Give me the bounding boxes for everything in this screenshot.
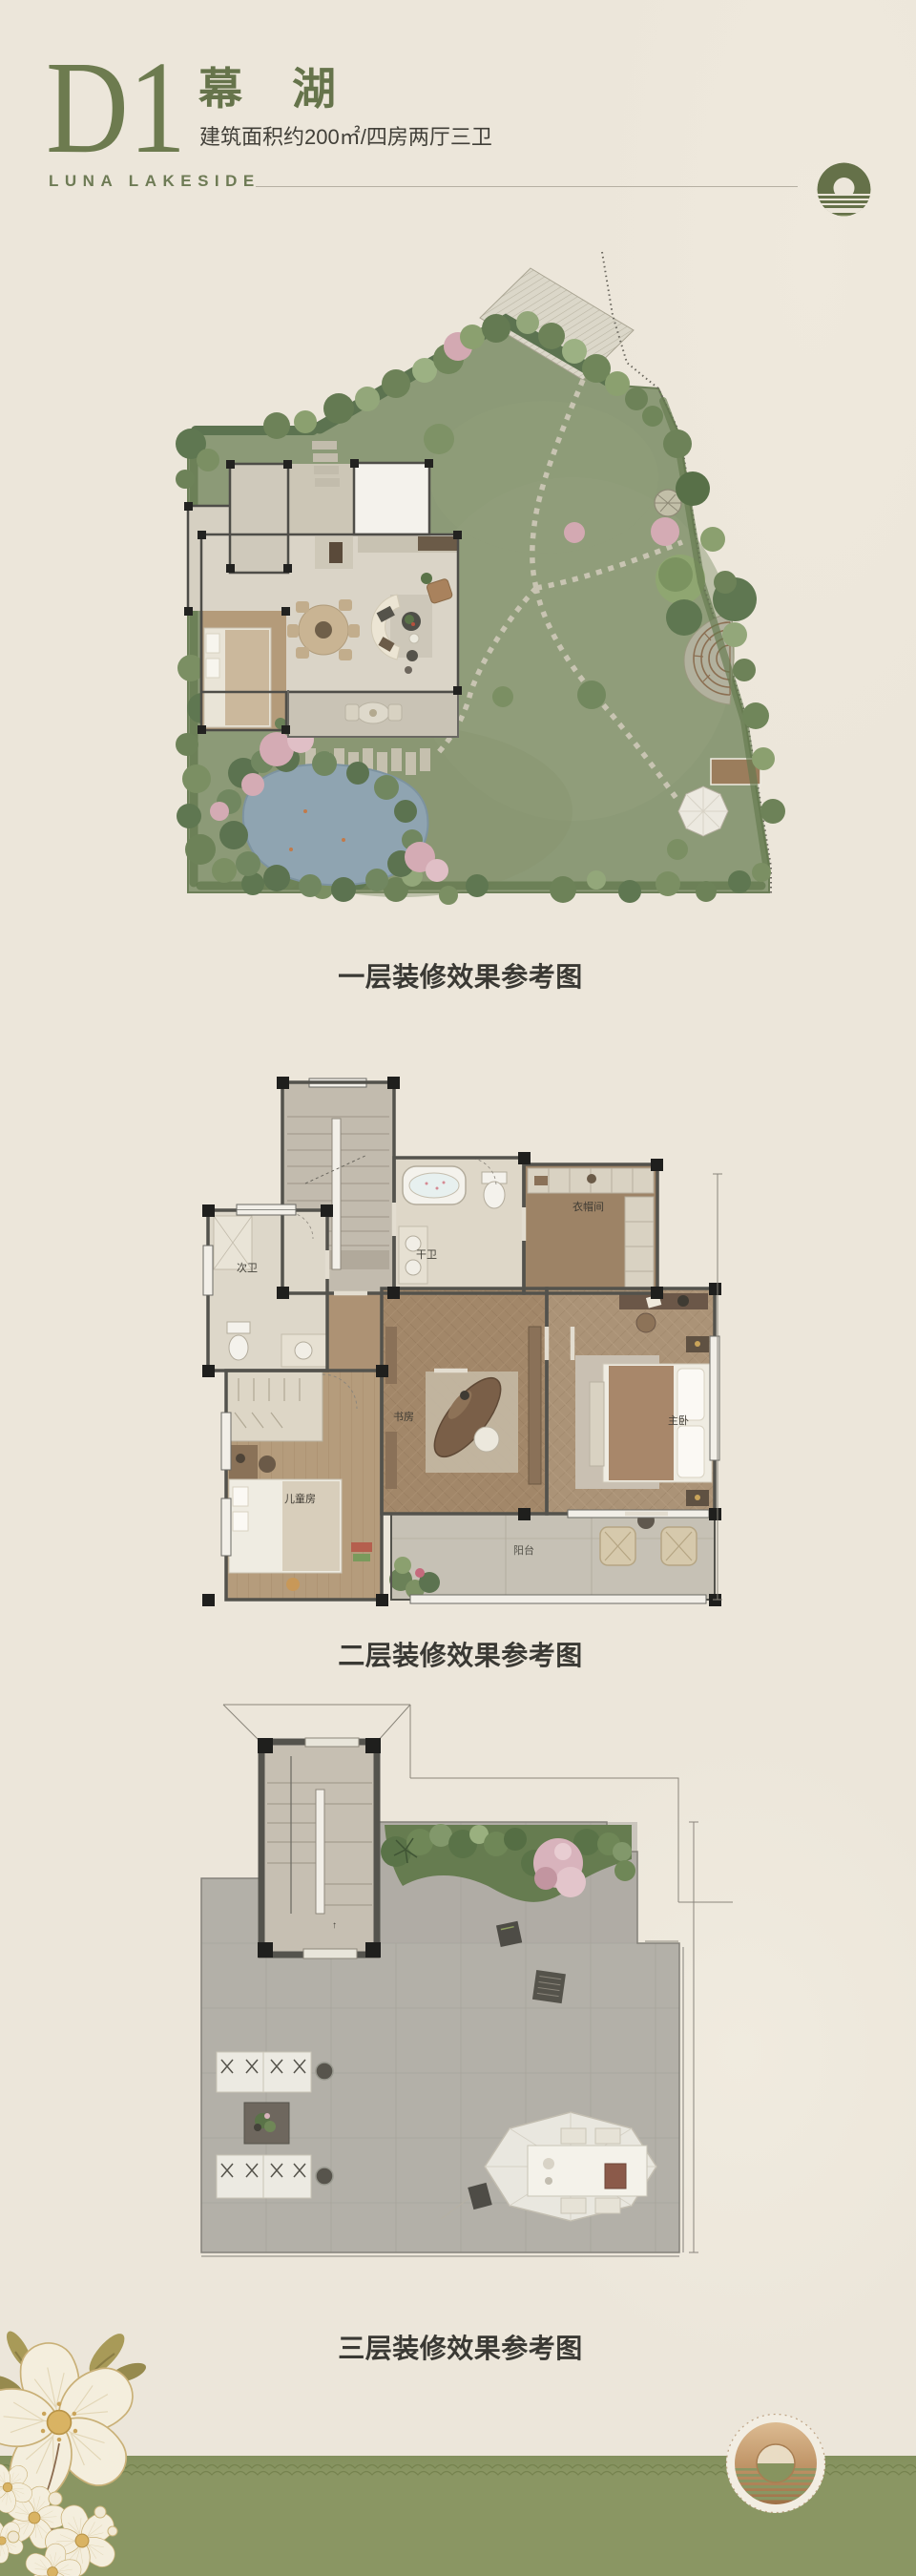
svg-text:衣帽间: 衣帽间 bbox=[572, 1200, 604, 1213]
svg-text:阳台: 阳台 bbox=[513, 1543, 534, 1557]
svg-text:干卫: 干卫 bbox=[416, 1249, 437, 1261]
svg-text:↑: ↑ bbox=[332, 1920, 337, 1931]
svg-text:儿童房: 儿童房 bbox=[284, 1492, 316, 1505]
svg-text:主卧: 主卧 bbox=[668, 1414, 689, 1427]
svg-text:书房: 书房 bbox=[393, 1411, 414, 1423]
svg-text:次卫: 次卫 bbox=[237, 1261, 258, 1274]
